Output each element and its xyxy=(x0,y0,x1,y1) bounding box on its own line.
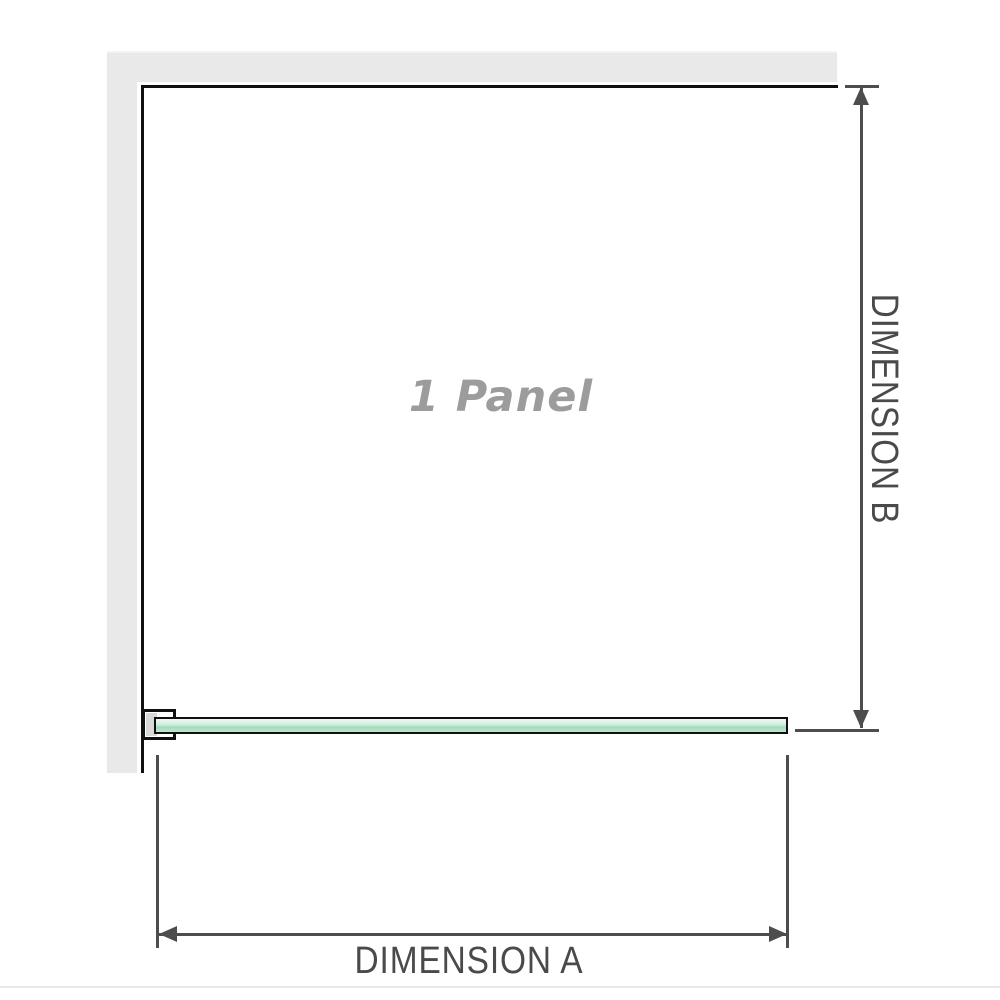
panel-count-label: 1 Panel xyxy=(409,372,593,422)
dim-b-arrow-down-icon xyxy=(853,710,869,728)
dim-a-arrow-right-icon xyxy=(769,926,787,942)
dim-a-arrow-left-icon xyxy=(159,926,177,942)
dim-b-extension-bottom-line xyxy=(795,729,879,732)
dim-a-label: DIMENSION A xyxy=(355,942,584,980)
wall-top-segment xyxy=(107,51,837,82)
glass-panel-bar xyxy=(154,717,788,734)
dim-b-arrow-up-icon xyxy=(853,87,869,105)
dim-a-extension-right-line xyxy=(786,755,789,948)
wall-left-segment xyxy=(107,51,137,773)
panel-edge-left-line xyxy=(141,85,144,773)
dim-a-extension-left-line xyxy=(156,755,159,948)
image-bottom-divider xyxy=(0,986,1000,988)
dim-a-line xyxy=(159,933,787,936)
panel-dimension-diagram: 1 Panel DIMENSION B DIMENSION A xyxy=(0,0,1000,1000)
dim-b-label: DIMENSION B xyxy=(865,294,903,525)
panel-edge-top-line xyxy=(141,85,838,88)
